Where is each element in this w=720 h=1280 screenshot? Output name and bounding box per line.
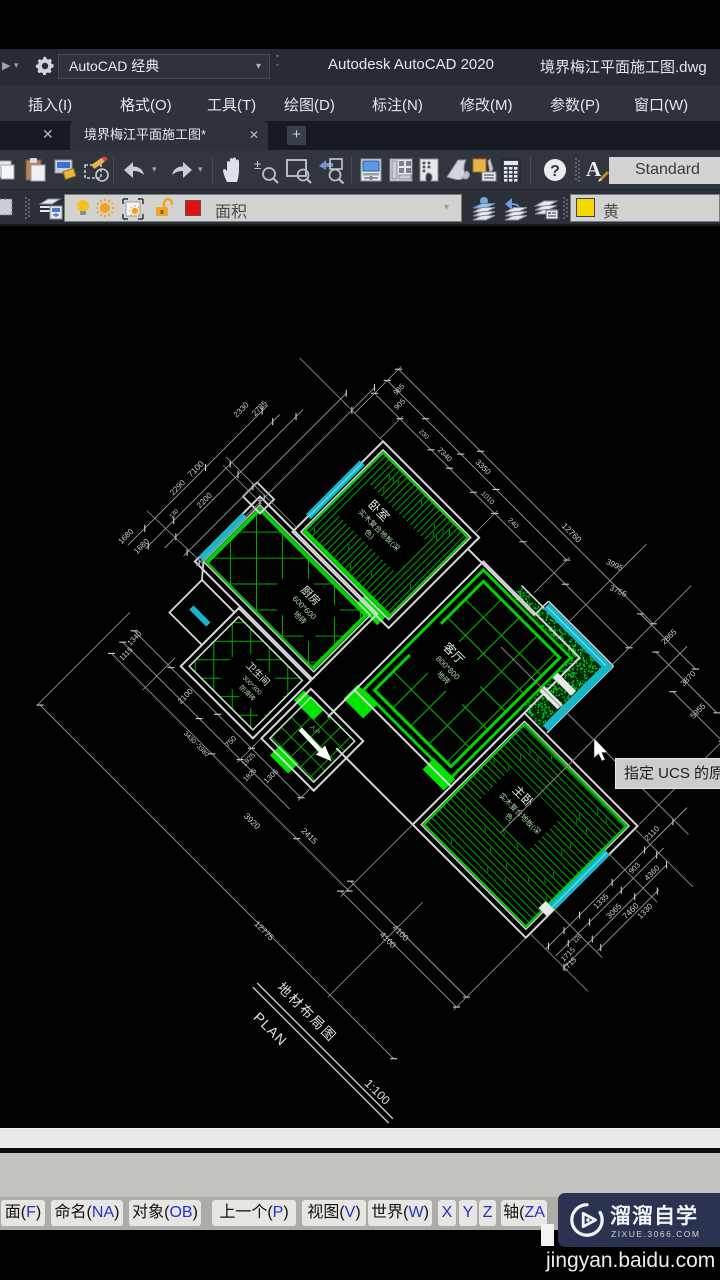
svg-text:5955: 5955 bbox=[689, 701, 708, 720]
svg-text:12760: 12760 bbox=[560, 521, 584, 545]
svg-text:903: 903 bbox=[627, 860, 642, 875]
svg-text:A: A bbox=[586, 157, 602, 181]
svg-text:7100: 7100 bbox=[185, 459, 206, 480]
svg-text:3430~3380: 3430~3380 bbox=[182, 730, 210, 758]
svg-text:2200: 2200 bbox=[195, 491, 214, 510]
svg-text:1925: 1925 bbox=[241, 752, 257, 768]
svg-text:±: ± bbox=[254, 157, 261, 172]
svg-text:2290: 2290 bbox=[168, 478, 187, 497]
svg-text:905: 905 bbox=[392, 397, 407, 412]
svg-text:3920: 3920 bbox=[242, 811, 263, 832]
svg-text:2415: 2415 bbox=[299, 826, 320, 847]
svg-text:2785: 2785 bbox=[250, 399, 269, 418]
svg-text:120: 120 bbox=[572, 933, 584, 945]
svg-text:2340: 2340 bbox=[436, 445, 454, 463]
svg-text:240: 240 bbox=[506, 517, 519, 530]
svg-text:1680: 1680 bbox=[116, 527, 135, 546]
svg-text:3870: 3870 bbox=[679, 669, 698, 688]
svg-text:1330: 1330 bbox=[636, 901, 655, 920]
svg-text:3995: 3995 bbox=[605, 557, 625, 573]
svg-text:PLAN: PLAN bbox=[251, 1009, 291, 1049]
svg-text:750: 750 bbox=[223, 734, 238, 749]
svg-text:1010: 1010 bbox=[479, 490, 495, 506]
svg-text:985: 985 bbox=[391, 382, 406, 397]
svg-text:130: 130 bbox=[169, 508, 181, 520]
svg-text:?: ? bbox=[550, 163, 560, 180]
svg-text:1305: 1305 bbox=[262, 767, 280, 785]
svg-text:2865: 2865 bbox=[660, 627, 679, 646]
svg-text:1335: 1335 bbox=[592, 891, 611, 910]
svg-text:入户: 入户 bbox=[308, 723, 322, 737]
svg-text:230: 230 bbox=[417, 428, 430, 441]
svg-text:1115: 1115 bbox=[117, 645, 134, 662]
svg-text:1340: 1340 bbox=[125, 629, 143, 647]
svg-text:12775: 12775 bbox=[252, 919, 276, 943]
svg-text:2330: 2330 bbox=[232, 400, 251, 419]
